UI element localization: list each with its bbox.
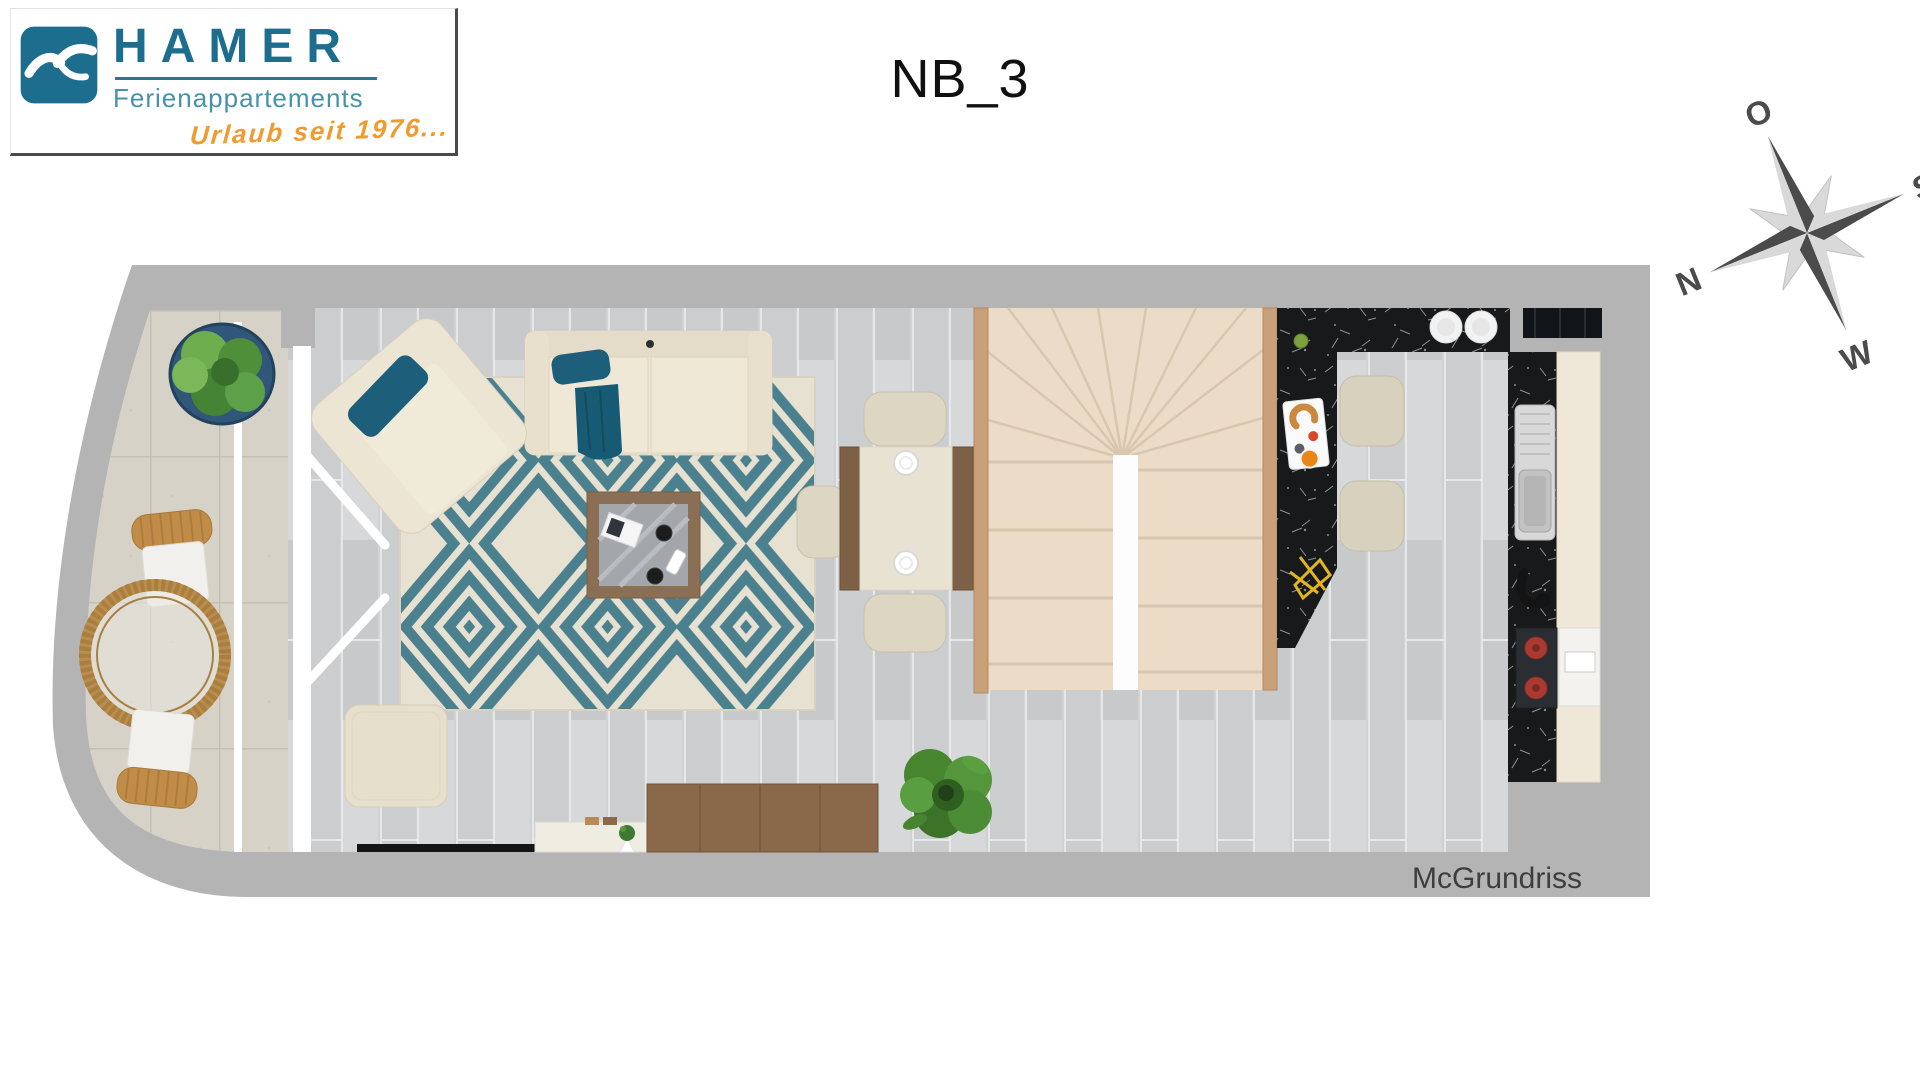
floor-plant bbox=[900, 749, 992, 838]
pouf bbox=[345, 705, 447, 807]
kitchen-cabinet-front bbox=[1557, 352, 1600, 782]
sofa bbox=[525, 331, 772, 460]
breakfast-tray bbox=[1283, 398, 1330, 470]
wall-stub bbox=[281, 308, 315, 348]
oven bbox=[1559, 628, 1600, 706]
balcony-plant bbox=[170, 324, 274, 424]
compass-main-points bbox=[1670, 96, 1920, 369]
coffee-table bbox=[587, 492, 700, 598]
floorplan-page: HAMER Ferienappartements Urlaub seit 197… bbox=[0, 0, 1920, 1080]
kitchen-counter bbox=[1508, 308, 1602, 782]
sink bbox=[1515, 405, 1555, 540]
compass-rose: O S W N bbox=[1622, 44, 1920, 425]
floorplan-image: McGrundriss O S W N bbox=[0, 0, 1920, 1080]
lime bbox=[1294, 334, 1308, 348]
round-wicker-table bbox=[85, 585, 225, 725]
stair-stringer-right bbox=[1263, 308, 1277, 690]
balcony-door-frame bbox=[293, 346, 311, 852]
compass-label-north: N bbox=[1671, 260, 1707, 303]
compass-label-west: W bbox=[1835, 333, 1879, 379]
sideboard bbox=[647, 784, 878, 852]
compass-label-east: O bbox=[1740, 91, 1778, 135]
compass-label-south: S bbox=[1907, 165, 1920, 208]
staircase bbox=[974, 308, 1277, 693]
stair-divider-wall bbox=[1113, 455, 1138, 690]
stair-stringer-left bbox=[974, 308, 988, 693]
dining-table bbox=[840, 447, 973, 590]
console-desk bbox=[535, 817, 647, 852]
bottom-right-wall bbox=[1508, 782, 1600, 853]
cooktop bbox=[1516, 628, 1557, 708]
watermark: McGrundriss bbox=[1412, 862, 1582, 895]
